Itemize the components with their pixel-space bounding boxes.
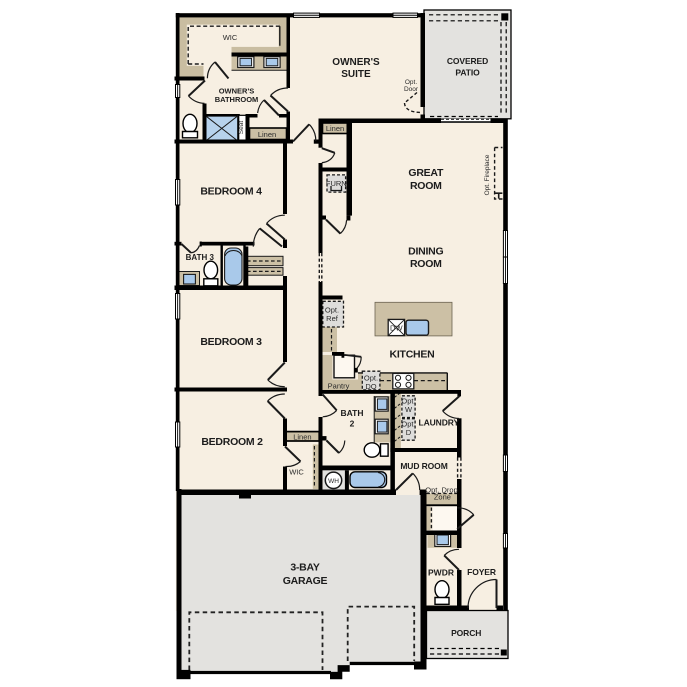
svg-text:2: 2 <box>350 419 355 429</box>
svg-text:WH: WH <box>328 478 339 485</box>
svg-text:BEDROOM 2: BEDROOM 2 <box>201 436 263 448</box>
svg-text:BATH 3: BATH 3 <box>186 253 215 262</box>
svg-text:3-BAY: 3-BAY <box>290 562 320 574</box>
svg-text:GREAT: GREAT <box>408 167 444 179</box>
svg-text:Opt. Fireplace: Opt. Fireplace <box>484 154 491 195</box>
svg-text:BATH: BATH <box>341 408 364 418</box>
svg-text:Linen: Linen <box>326 124 344 133</box>
svg-text:DO: DO <box>365 382 376 391</box>
svg-text:Door: Door <box>404 86 419 93</box>
svg-text:PORCH: PORCH <box>451 628 481 638</box>
svg-text:Opt.: Opt. <box>405 79 417 86</box>
svg-text:Zone: Zone <box>434 493 451 502</box>
svg-text:OWNER'S: OWNER'S <box>332 57 380 68</box>
svg-text:Linen: Linen <box>258 130 276 139</box>
svg-text:SUITE: SUITE <box>341 69 371 80</box>
svg-text:COVERED: COVERED <box>447 56 488 66</box>
svg-text:BEDROOM 3: BEDROOM 3 <box>200 336 262 348</box>
svg-text:FURN: FURN <box>326 179 347 188</box>
svg-text:MUD ROOM: MUD ROOM <box>400 461 447 471</box>
svg-text:KITCHEN: KITCHEN <box>390 349 435 361</box>
svg-text:Ref: Ref <box>326 314 339 323</box>
svg-text:WIC: WIC <box>289 468 304 477</box>
svg-text:LAUNDRY: LAUNDRY <box>419 418 460 428</box>
svg-text:Pantry: Pantry <box>328 382 350 391</box>
svg-text:D: D <box>406 428 412 437</box>
svg-text:ROOM: ROOM <box>410 258 442 270</box>
svg-text:PATIO: PATIO <box>455 68 480 78</box>
svg-text:BATHROOM: BATHROOM <box>215 95 259 104</box>
svg-text:Seat: Seat <box>238 121 245 135</box>
svg-text:ROOM: ROOM <box>410 180 442 192</box>
svg-text:W: W <box>405 405 413 414</box>
svg-text:FOYER: FOYER <box>467 567 496 577</box>
svg-text:BEDROOM 4: BEDROOM 4 <box>200 186 262 198</box>
svg-text:DW: DW <box>390 324 403 333</box>
svg-text:WIC: WIC <box>223 33 238 42</box>
svg-text:PWDR: PWDR <box>428 568 454 578</box>
svg-text:GARAGE: GARAGE <box>283 575 328 587</box>
svg-text:Linen: Linen <box>293 433 311 442</box>
svg-text:DINING: DINING <box>408 246 443 258</box>
